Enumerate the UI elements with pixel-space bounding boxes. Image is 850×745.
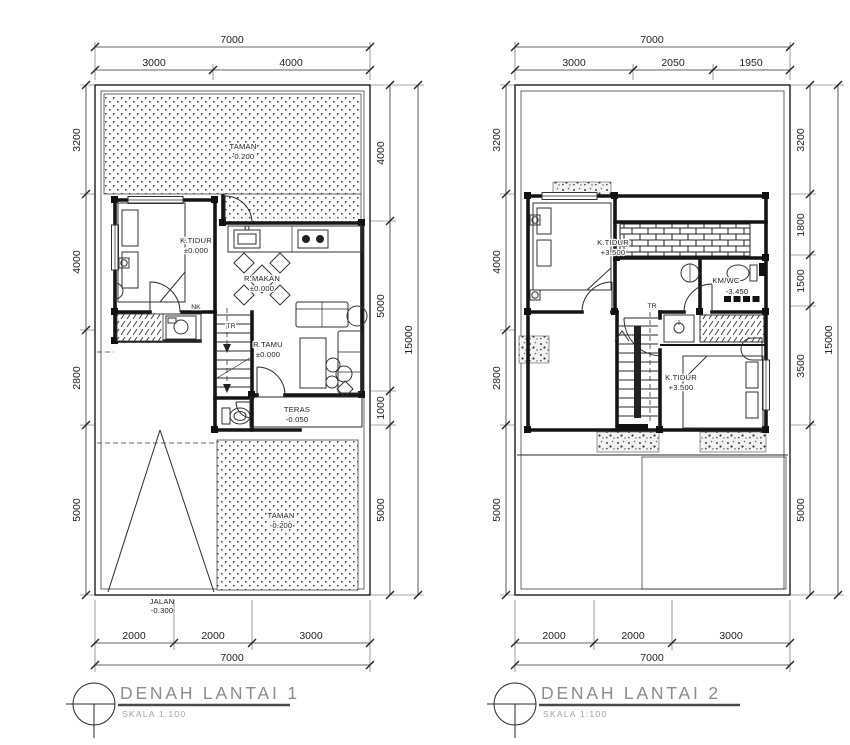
plan1-toilet-symbol [222,408,250,424]
dim-p1-bottom-c: 3000 [299,630,323,642]
plan2-title-block: DENAH LANTAI 2 SKALA 1:100 [487,683,740,738]
dim-p1-right-c: 1000 [375,396,387,420]
label-terrace-elev: -0.050 [286,415,309,424]
dim-p1-top-b: 4000 [279,57,303,69]
plan1: TAMAN -0.200 K.TIDUR ±0.000 R.MAKAN ±0.0… [66,34,424,738]
dim-p2-bottom-b: 2000 [621,630,645,642]
label-bedroom1-elev: +3.500 [601,248,626,257]
label-stair-tr2: TR [647,303,656,310]
dim-p1-bottom-total: 7000 [220,652,244,664]
label-bedroom1-name: K.TIDUR [597,238,629,247]
plan2-title: DENAH LANTAI 2 [541,683,721,703]
label-bedroom2-name: K.TIDUR [665,373,697,382]
plan2-brick-strip [620,224,750,256]
dim-p2-top-a: 3000 [562,57,586,69]
plan2-stairs [615,312,658,430]
plan1-title: DENAH LANTAI 1 [120,683,300,703]
label-bathroom-name: KM/WC [712,276,739,285]
label-terrace-name: TERAS [284,405,310,414]
label-dining-name: R.MAKAN [244,274,280,283]
label-dining-elev: ±0.000 [250,284,274,293]
plan1-sofa-set [296,302,367,397]
floor-plan-page: TAMAN -0.200 K.TIDUR ±0.000 R.MAKAN ±0.0… [0,0,850,745]
dim-p1-side-total: 15000 [403,325,415,354]
plan2-bed2-symbol [664,315,764,428]
label-bedroom-elev: ±0.000 [184,246,208,255]
dim-p2-left-a: 3200 [491,128,503,152]
label-garden-top-elev: -0.200 [232,152,255,161]
label-road-elev: -0.300 [151,606,174,615]
plan1-title-block: DENAH LANTAI 1 SKALA 1:100 [66,683,300,738]
plan1-kitchen-counter [228,226,362,252]
dim-p1-top-total: 7000 [220,34,244,46]
dim-p2-right-d: 3500 [795,354,807,378]
dim-p1-top-a: 3000 [142,57,166,69]
dim-p2-left-c: 2800 [491,366,503,390]
label-garden-bottom-elev: -0.200 [270,521,293,530]
plan1-driveway-lines [97,352,214,592]
plan1-laundry-area [117,314,201,341]
dim-p2-bottom-total: 7000 [640,652,664,664]
dim-p1-left-b: 4000 [71,250,83,274]
dim-p1-left-a: 3200 [71,128,83,152]
dim-p2-bottom-c: 3000 [719,630,743,642]
plan1-walls [115,196,362,430]
label-stair-nk: NK [191,304,201,311]
label-bedroom-name: K.TIDUR [180,236,212,245]
label-garden-top-name: TAMAN [229,142,256,151]
plan2-scale: SKALA 1:100 [543,709,607,719]
label-road-name: JALAN [150,597,175,606]
dim-p2-right-c: 1500 [795,269,807,293]
label-living-name: R.TAMU [253,340,283,349]
label-living-elev: ±0.000 [256,350,280,359]
label-garden-bottom-name: TAMAN [267,511,294,520]
dim-p2-bottom-a: 2000 [542,630,566,642]
plan1-wall-socket [119,258,129,268]
dim-p1-left-c: 2800 [71,366,83,390]
dim-p1-right-b: 5000 [375,294,387,318]
plan2: K.TIDUR +3.500 KM/WC -3.450 K.TIDUR +3.5… [487,34,844,738]
plan2-roof-lines [517,455,788,589]
dim-p1-right-a: 4000 [375,141,387,165]
dim-p2-top-c: 1950 [739,57,763,69]
dim-p2-left-b: 4000 [491,250,503,274]
plan1-stairs [216,308,251,393]
dim-p1-left-d: 5000 [71,498,83,522]
dim-p2-top-total: 7000 [640,34,664,46]
dim-p2-left-d: 5000 [491,498,503,522]
dim-p1-bottom-a: 2000 [122,630,146,642]
label-stair-tr: TR [226,323,235,330]
dim-p1-bottom-b: 2000 [201,630,225,642]
dim-p1-right-d: 5000 [375,498,387,522]
dim-p2-top-b: 2050 [661,57,685,69]
plan1-doors [150,196,285,418]
dim-p2-side-total: 15000 [823,325,835,354]
label-bathroom-elev: -3.450 [726,287,749,296]
label-bedroom2-elev: +3.500 [669,383,694,392]
dim-p2-right-b: 1800 [795,213,807,237]
plan1-scale: SKALA 1:100 [122,709,186,719]
dim-p2-right-e: 5000 [795,498,807,522]
floor-plan-drawing: TAMAN -0.200 K.TIDUR ±0.000 R.MAKAN ±0.0… [0,0,850,745]
dim-p2-right-a: 3200 [795,128,807,152]
plan1-bed-symbol [118,203,185,302]
